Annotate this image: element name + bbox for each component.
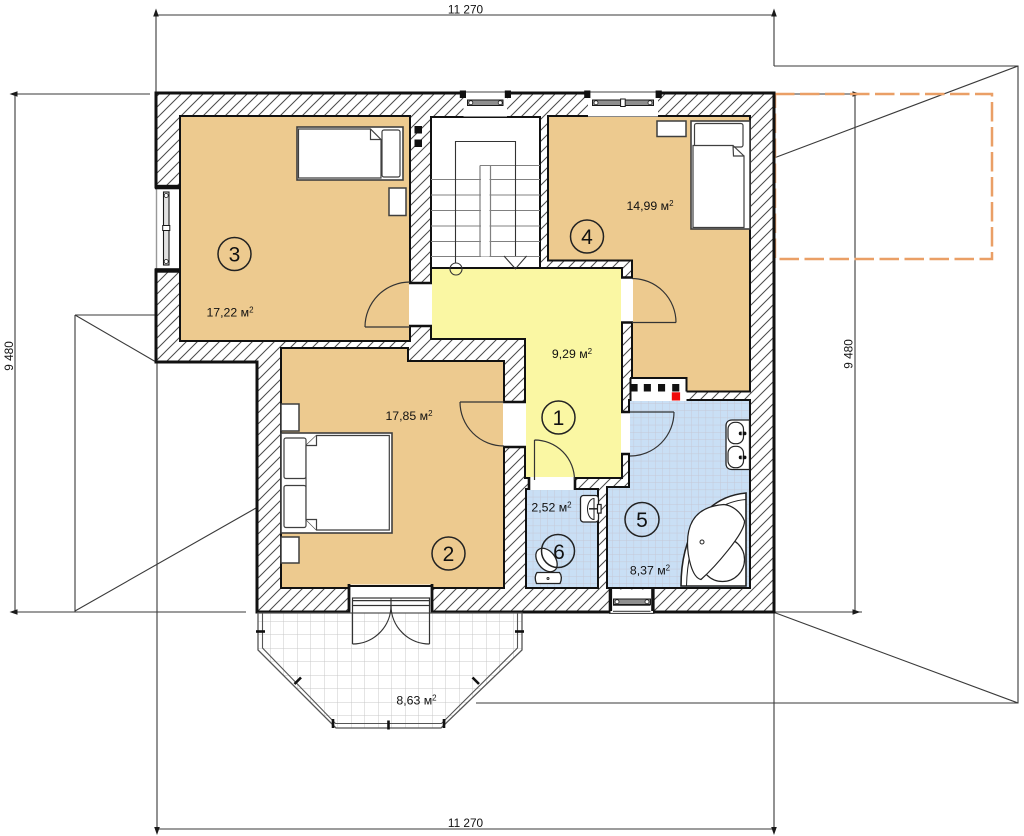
svg-text:3: 3 [229, 244, 241, 267]
svg-text:8,63 м2: 8,63 м2 [396, 693, 437, 707]
svg-text:6: 6 [553, 541, 565, 564]
svg-text:17,85 м2: 17,85 м2 [385, 409, 433, 423]
svg-text:11 270: 11 270 [448, 816, 484, 830]
svg-text:9 480: 9 480 [2, 341, 16, 371]
svg-text:17,22 м2: 17,22 м2 [206, 305, 254, 319]
svg-text:5: 5 [636, 509, 648, 532]
svg-text:8,37 м2: 8,37 м2 [630, 564, 671, 578]
svg-text:2: 2 [443, 543, 455, 566]
svg-text:4: 4 [581, 226, 593, 249]
svg-text:9,29 м2: 9,29 м2 [552, 347, 593, 361]
svg-text:9 480: 9 480 [842, 339, 856, 369]
svg-text:1: 1 [553, 407, 565, 430]
svg-text:11 270: 11 270 [448, 2, 484, 16]
svg-text:2,52 м2: 2,52 м2 [531, 501, 572, 515]
svg-text:14,99 м2: 14,99 м2 [626, 199, 674, 213]
